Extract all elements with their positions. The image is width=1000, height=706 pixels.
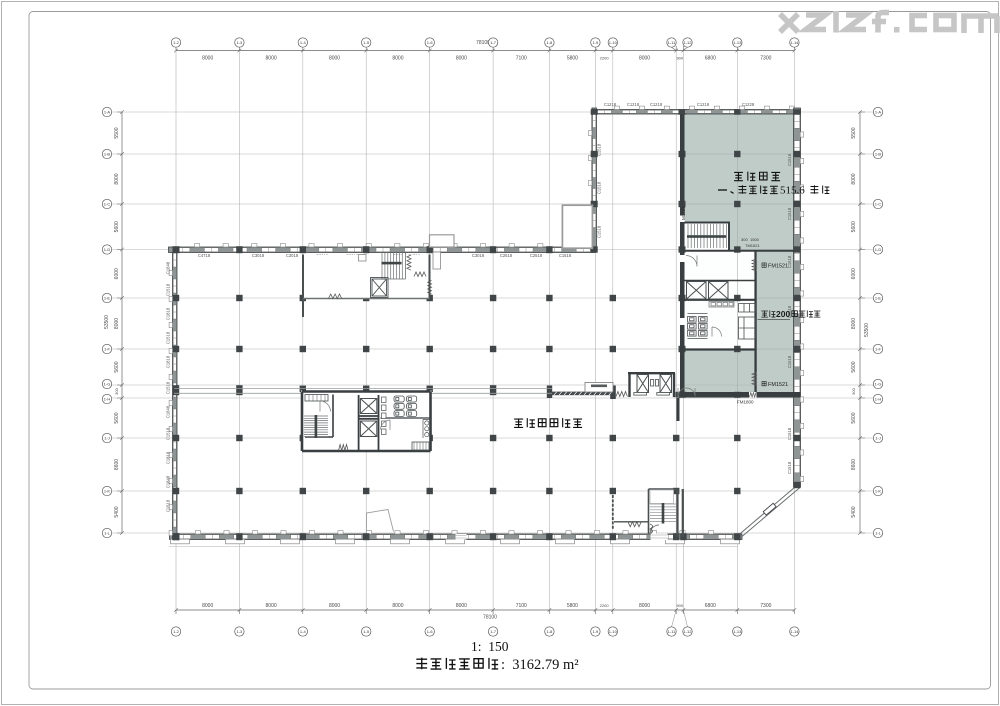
svg-text:1-J: 1-J: [104, 436, 110, 441]
svg-text:6800: 6800: [705, 56, 716, 62]
svg-text:1-2: 1-2: [173, 629, 180, 634]
svg-text:FM1521: FM1521: [768, 264, 788, 270]
svg-text:1-6: 1-6: [427, 40, 434, 45]
svg-text:1-5: 1-5: [363, 629, 370, 634]
svg-text:8000: 8000: [851, 173, 857, 184]
svg-text:1-3: 1-3: [237, 629, 244, 634]
svg-text:1500: 1500: [750, 237, 760, 242]
svg-text:53500: 53500: [864, 323, 870, 337]
svg-text:1-4: 1-4: [300, 629, 307, 634]
svg-text:1-8: 1-8: [547, 40, 554, 45]
svg-text:1-L: 1-L: [875, 531, 882, 536]
svg-text:C1518: C1518: [597, 181, 602, 194]
svg-text:1-A: 1-A: [875, 110, 882, 115]
svg-text:1-L: 1-L: [104, 531, 111, 536]
svg-text:8000: 8000: [202, 56, 213, 62]
svg-text:300: 300: [851, 387, 856, 394]
svg-text:7300: 7300: [760, 56, 771, 62]
svg-text:C1518: C1518: [787, 207, 792, 220]
svg-text:C1218: C1218: [697, 102, 710, 107]
svg-text:1-11: 1-11: [668, 629, 676, 634]
svg-text:1-9: 1-9: [593, 40, 600, 45]
svg-text:8000: 8000: [114, 318, 120, 329]
svg-text:1-H: 1-H: [875, 397, 882, 402]
svg-text:C1818: C1818: [166, 355, 171, 368]
svg-text:C1518: C1518: [787, 153, 792, 166]
svg-text:1-13: 1-13: [733, 40, 742, 45]
svg-text:6000: 6000: [114, 268, 120, 279]
svg-text:1-E: 1-E: [875, 296, 882, 301]
svg-text:5400: 5400: [851, 506, 857, 517]
svg-text:C1518: C1518: [166, 283, 171, 296]
svg-text:C1518: C1518: [166, 331, 171, 344]
svg-text:1-13: 1-13: [733, 629, 742, 634]
svg-text:1-7: 1-7: [490, 629, 497, 634]
svg-text:C1218: C1218: [627, 102, 640, 107]
svg-text:C1518: C1518: [166, 499, 171, 512]
svg-text:C1518: C1518: [787, 461, 792, 474]
svg-text:5600: 5600: [851, 221, 857, 232]
svg-text:1-12: 1-12: [683, 629, 692, 634]
svg-text:C1848: C1848: [166, 261, 171, 274]
svg-text:1-4: 1-4: [300, 40, 307, 45]
svg-text:C1228: C1228: [742, 102, 755, 107]
svg-text:: 3162.79 m²: : 3162.79 m²: [501, 657, 579, 673]
svg-text:1-F: 1-F: [104, 347, 111, 352]
svg-text:1-K: 1-K: [875, 489, 882, 494]
svg-text:1-8: 1-8: [547, 629, 554, 634]
svg-text:1-14: 1-14: [790, 40, 799, 45]
svg-text:6000: 6000: [851, 268, 857, 279]
svg-text:5800: 5800: [567, 56, 578, 62]
svg-text:1: 150: 1: 150: [471, 639, 509, 654]
svg-text:1-3: 1-3: [237, 40, 244, 45]
svg-text:6800: 6800: [705, 603, 716, 609]
svg-text:1-J: 1-J: [875, 436, 881, 441]
svg-text:8000: 8000: [329, 603, 340, 609]
svg-text:8000: 8000: [114, 173, 120, 184]
svg-text:M1521: M1521: [681, 206, 686, 220]
svg-text:C1518: C1518: [166, 381, 171, 394]
svg-text:5600: 5600: [114, 221, 120, 232]
svg-text:8000: 8000: [639, 56, 650, 62]
svg-text:1-A: 1-A: [104, 110, 111, 115]
svg-text:1-7: 1-7: [490, 40, 497, 45]
svg-text:8000: 8000: [851, 318, 857, 329]
svg-text:7100: 7100: [516, 603, 527, 609]
svg-text:515.6: 515.6: [780, 185, 805, 197]
svg-text:C1518: C1518: [597, 225, 602, 238]
svg-text:78100: 78100: [483, 615, 497, 621]
svg-text:C3018: C3018: [472, 253, 485, 258]
svg-text:FM1800: FM1800: [737, 400, 754, 405]
svg-text:8600: 8600: [851, 459, 857, 470]
svg-text:C1518: C1518: [166, 427, 171, 440]
svg-text:5600: 5600: [114, 361, 120, 372]
svg-text:C1818: C1818: [166, 451, 171, 464]
svg-text:1-D: 1-D: [104, 247, 111, 252]
svg-text:5500: 5500: [851, 127, 857, 138]
svg-text:C1518: C1518: [559, 253, 572, 258]
svg-text:FM1521: FM1521: [768, 382, 788, 388]
svg-text:2200: 2200: [600, 603, 610, 608]
svg-text:1-C: 1-C: [104, 202, 111, 207]
svg-text:7300: 7300: [760, 603, 771, 609]
svg-text:1-B: 1-B: [875, 152, 882, 157]
svg-text:C2518: C2518: [500, 253, 513, 258]
svg-text:1-12: 1-12: [683, 40, 692, 45]
svg-text:300: 300: [741, 237, 748, 242]
svg-text:1-10: 1-10: [609, 629, 618, 634]
svg-text:5400: 5400: [114, 506, 120, 517]
svg-text:C1848: C1848: [166, 405, 171, 418]
svg-text:8000: 8000: [266, 603, 277, 609]
svg-text:1-5: 1-5: [363, 40, 370, 45]
svg-text:200: 200: [776, 309, 790, 319]
svg-text:8000: 8000: [392, 603, 403, 609]
svg-text:53500: 53500: [104, 315, 110, 329]
svg-text:1-F: 1-F: [875, 347, 882, 352]
svg-text:C1818: C1818: [166, 307, 171, 320]
svg-text:1-B: 1-B: [104, 152, 111, 157]
svg-text:1-G: 1-G: [104, 382, 111, 387]
svg-text:1-G: 1-G: [875, 382, 882, 387]
svg-text:1-6: 1-6: [427, 629, 434, 634]
svg-text:900: 900: [676, 603, 683, 608]
svg-text:1-D: 1-D: [875, 247, 882, 252]
svg-text:C1218: C1218: [604, 102, 617, 107]
svg-text:C1518: C1518: [787, 427, 792, 440]
svg-text:8600: 8600: [114, 459, 120, 470]
svg-text:1-10: 1-10: [609, 40, 618, 45]
svg-text:5600: 5600: [851, 412, 857, 423]
svg-text:5800: 5800: [567, 603, 578, 609]
svg-text:8000: 8000: [456, 56, 467, 62]
svg-text:7100: 7100: [516, 56, 527, 62]
svg-text:1-C: 1-C: [875, 202, 882, 207]
svg-text:5600: 5600: [114, 412, 120, 423]
svg-text:8000: 8000: [329, 56, 340, 62]
svg-text:5500: 5500: [114, 127, 120, 138]
svg-text:1-2: 1-2: [173, 40, 180, 45]
svg-text:8000: 8000: [456, 603, 467, 609]
svg-text:C1518: C1518: [787, 355, 792, 368]
svg-text:5600: 5600: [851, 361, 857, 372]
svg-text:C1218: C1218: [650, 102, 663, 107]
svg-text:1-E: 1-E: [104, 296, 111, 301]
svg-text:C4718: C4718: [198, 253, 211, 258]
svg-text:300: 300: [114, 387, 119, 394]
svg-text:8000: 8000: [639, 603, 650, 609]
svg-text:1-K: 1-K: [104, 489, 111, 494]
svg-text:8000: 8000: [392, 56, 403, 62]
svg-text:C3018: C3018: [252, 253, 265, 258]
svg-text:C1848: C1848: [166, 475, 171, 488]
svg-text:8000: 8000: [266, 56, 277, 62]
svg-text:1-H: 1-H: [104, 397, 111, 402]
svg-text:1-11: 1-11: [668, 40, 676, 45]
svg-text:C2518: C2518: [530, 253, 543, 258]
svg-text:1-14: 1-14: [790, 629, 799, 634]
svg-text:78100: 78100: [476, 40, 490, 46]
svg-text:2200: 2200: [600, 56, 610, 61]
svg-text:8000: 8000: [202, 603, 213, 609]
svg-text:1-9: 1-9: [593, 629, 600, 634]
svg-text:C3018: C3018: [286, 253, 299, 258]
svg-text:TM1521: TM1521: [745, 243, 760, 248]
svg-text:900: 900: [676, 56, 683, 61]
